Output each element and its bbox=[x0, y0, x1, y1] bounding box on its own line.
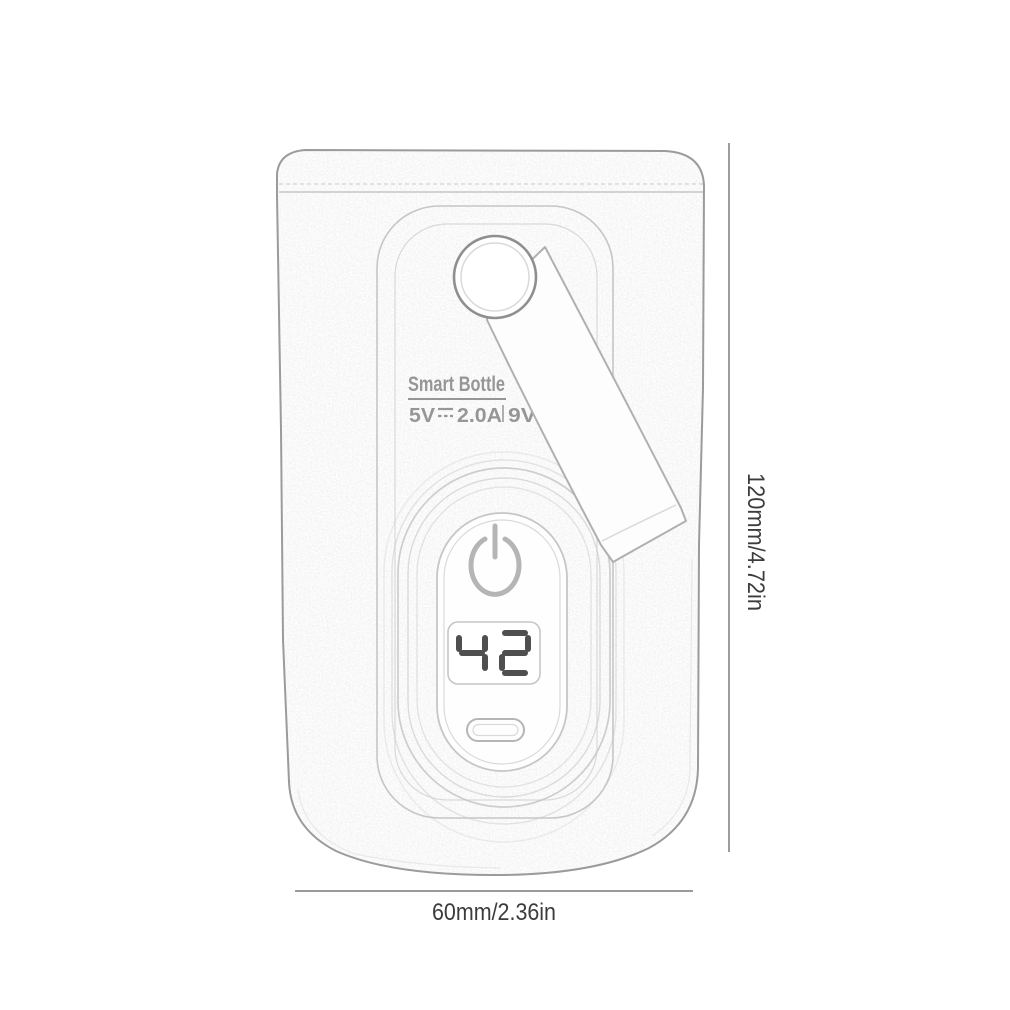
bottle-warmer-device: Smart Bottle 5V 2.0A 9V bbox=[277, 150, 704, 875]
product-dimension-diagram: Smart Bottle 5V 2.0A 9V bbox=[0, 0, 1010, 1010]
height-dimension-label: 120mm/4.72in bbox=[742, 473, 769, 611]
temperature-display bbox=[448, 622, 540, 684]
diagram-canvas: Smart Bottle 5V 2.0A 9V bbox=[0, 0, 1010, 1010]
hang-hole bbox=[454, 236, 536, 318]
label-title-text: Smart Bottle bbox=[408, 373, 505, 396]
label-voltage-text: 5V bbox=[409, 405, 436, 427]
label-current-text: 2.0A bbox=[457, 405, 502, 427]
width-dimension-label: 60mm/2.36in bbox=[432, 899, 556, 926]
